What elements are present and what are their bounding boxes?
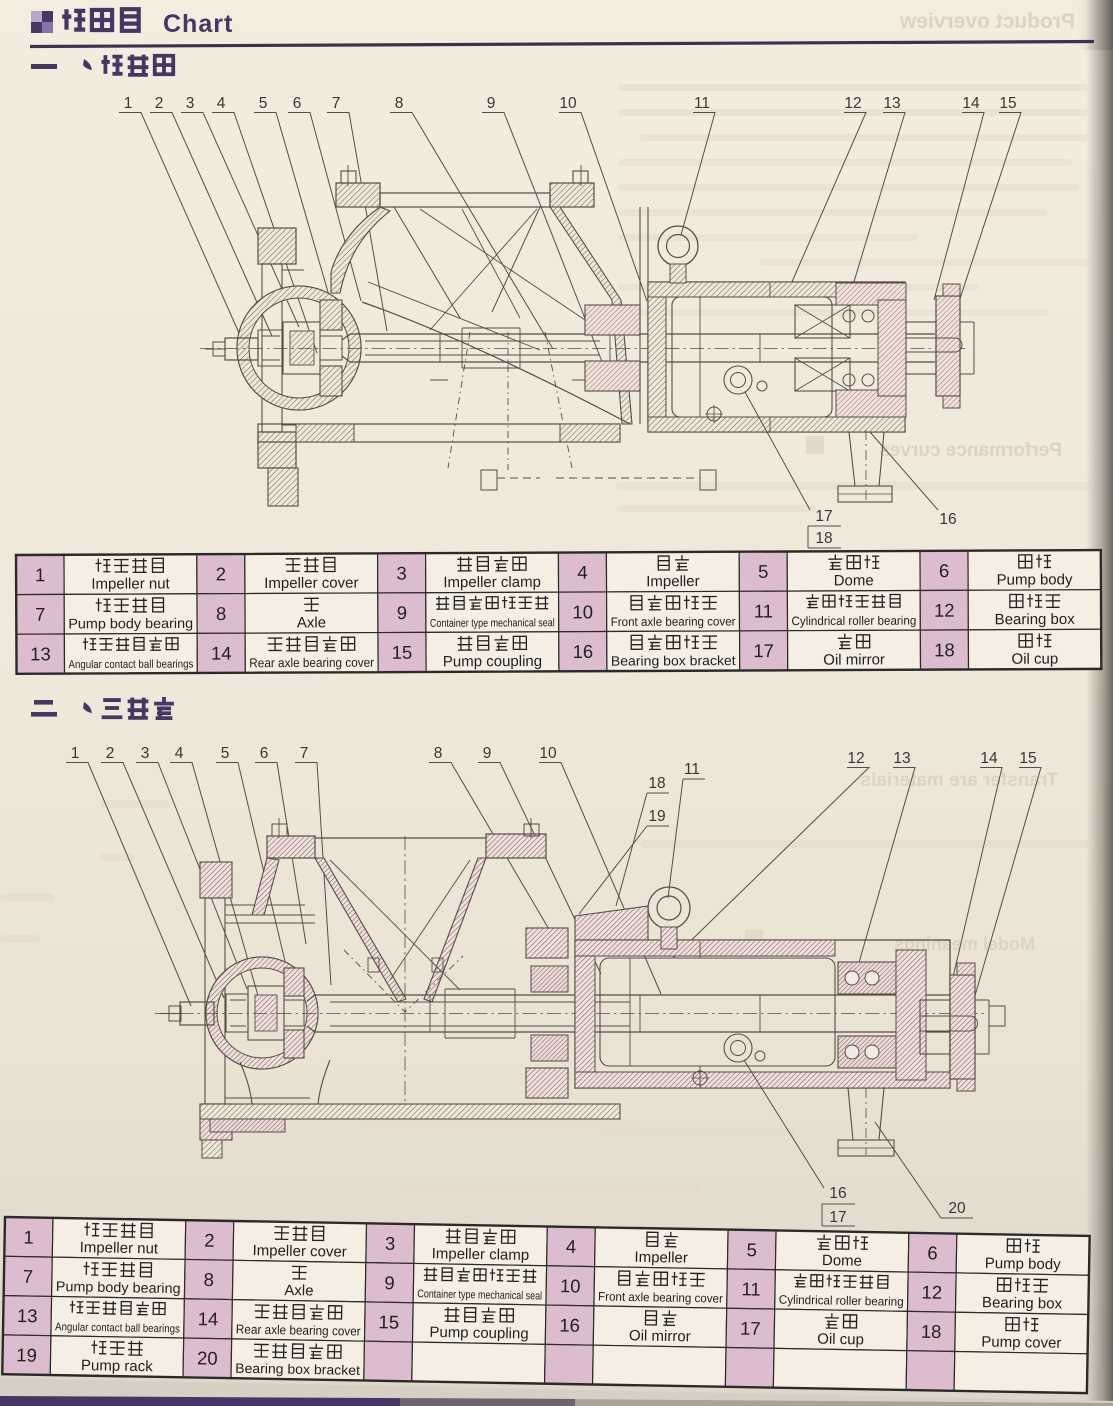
svg-text:Container type mechanical seal: Container type mechanical seal <box>417 1288 542 1302</box>
svg-text:13: 13 <box>30 643 51 664</box>
svg-text:Product overview: Product overview <box>899 10 1075 33</box>
svg-text:8: 8 <box>434 745 443 762</box>
svg-text:Transfer are materials: Transfer are materials <box>860 770 1058 791</box>
svg-text:7: 7 <box>332 95 341 112</box>
svg-text:15: 15 <box>392 642 413 663</box>
svg-text:14: 14 <box>962 95 980 112</box>
svg-text:18: 18 <box>648 775 665 792</box>
svg-text:5: 5 <box>746 1239 757 1260</box>
svg-text:13: 13 <box>17 1305 38 1326</box>
svg-text:1: 1 <box>23 1226 34 1247</box>
svg-text:Angular contact ball bearings: Angular contact ball bearings <box>68 658 193 671</box>
svg-text:Oil mirror: Oil mirror <box>823 651 885 668</box>
svg-text:1: 1 <box>71 745 80 762</box>
svg-text:14: 14 <box>211 643 232 664</box>
svg-text:Bearing box: Bearing box <box>982 1294 1063 1312</box>
svg-text:16: 16 <box>939 511 956 528</box>
svg-text:20: 20 <box>197 1347 218 1368</box>
svg-text:17: 17 <box>829 1209 846 1226</box>
svg-text:6: 6 <box>939 560 949 581</box>
svg-text:9: 9 <box>397 602 407 623</box>
svg-text:14: 14 <box>198 1308 219 1329</box>
svg-text:5: 5 <box>259 95 268 112</box>
svg-text:7: 7 <box>23 1266 34 1287</box>
svg-text:1: 1 <box>35 564 45 585</box>
svg-text:2: 2 <box>204 1230 215 1251</box>
svg-text:15: 15 <box>378 1311 399 1332</box>
svg-text:3: 3 <box>385 1233 396 1254</box>
svg-text:Dome: Dome <box>822 1252 862 1270</box>
svg-text:Rear axle bearing cover: Rear axle bearing cover <box>236 1321 362 1338</box>
svg-text:6: 6 <box>927 1242 938 1263</box>
svg-text:Impeller nut: Impeller nut <box>80 1239 159 1257</box>
svg-text:8: 8 <box>395 95 404 112</box>
svg-text:11: 11 <box>694 95 710 112</box>
svg-text:10: 10 <box>560 1275 581 1296</box>
svg-text:6: 6 <box>293 95 302 112</box>
svg-text:9: 9 <box>487 95 496 112</box>
svg-text:11: 11 <box>754 600 773 621</box>
svg-text:Front axle bearing cover: Front axle bearing cover <box>611 614 736 629</box>
svg-text:16: 16 <box>829 1185 846 1202</box>
svg-text:18: 18 <box>815 530 832 547</box>
svg-text:12: 12 <box>921 1281 942 1302</box>
svg-text:17: 17 <box>740 1318 761 1339</box>
svg-text:Pump body: Pump body <box>985 1255 1062 1273</box>
svg-text:4: 4 <box>566 1236 577 1257</box>
svg-text:Impeller cover: Impeller cover <box>252 1242 346 1261</box>
svg-text:15: 15 <box>999 95 1016 112</box>
svg-text:5: 5 <box>221 745 230 762</box>
svg-text:Axle: Axle <box>297 614 326 631</box>
svg-text:19: 19 <box>648 808 665 825</box>
svg-text:Pump cover: Pump cover <box>981 1333 1061 1351</box>
svg-text:9: 9 <box>384 1272 395 1293</box>
svg-text:Axle: Axle <box>284 1282 313 1300</box>
svg-text:Impeller clamp: Impeller clamp <box>432 1245 530 1264</box>
svg-text:Oil mirror: Oil mirror <box>629 1327 691 1345</box>
svg-text:3: 3 <box>396 563 406 584</box>
svg-text:4: 4 <box>217 95 226 112</box>
svg-text:4: 4 <box>175 745 184 762</box>
svg-text:Impeller cover: Impeller cover <box>264 575 358 592</box>
svg-text:Cylindrical roller bearing: Cylindrical roller bearing <box>791 614 916 629</box>
svg-text:Dome: Dome <box>834 572 874 589</box>
svg-text:12: 12 <box>844 95 861 112</box>
svg-text:16: 16 <box>573 641 594 662</box>
svg-text:Impeller: Impeller <box>646 573 699 590</box>
svg-text:2: 2 <box>155 95 164 112</box>
svg-text:Pump body bearing: Pump body bearing <box>68 615 193 632</box>
svg-text:Impeller clamp: Impeller clamp <box>443 574 541 591</box>
svg-text:12: 12 <box>847 750 864 767</box>
svg-text:Impeller: Impeller <box>634 1249 688 1267</box>
svg-text:3: 3 <box>186 95 195 112</box>
svg-text:Impeller nut: Impeller nut <box>91 575 170 592</box>
svg-text:15: 15 <box>1019 750 1036 767</box>
svg-text:Performance curves: Performance curves <box>879 440 1062 461</box>
svg-text:6: 6 <box>260 745 269 762</box>
svg-text:Front axle bearing cover: Front axle bearing cover <box>598 1289 723 1305</box>
svg-text:7: 7 <box>300 745 309 762</box>
svg-text:20: 20 <box>948 1200 966 1217</box>
svg-text:Container type mechanical seal: Container type mechanical seal <box>430 617 555 630</box>
svg-text:Angular contact ball bearings: Angular contact ball bearings <box>55 1321 180 1335</box>
svg-text:2: 2 <box>216 563 226 584</box>
svg-text:10: 10 <box>539 745 557 762</box>
svg-text:13: 13 <box>893 750 910 767</box>
svg-text:10: 10 <box>559 95 577 112</box>
svg-text:Bearing box: Bearing box <box>995 611 1076 628</box>
svg-text:Chart: Chart <box>163 10 233 38</box>
svg-text:8: 8 <box>203 1269 214 1290</box>
svg-text:11: 11 <box>741 1278 761 1299</box>
svg-text:2: 2 <box>106 745 115 762</box>
svg-text:18: 18 <box>921 1321 942 1342</box>
svg-text:Pump coupling: Pump coupling <box>429 1324 529 1343</box>
svg-text:1: 1 <box>124 95 133 112</box>
svg-text:Bearing box bracket: Bearing box bracket <box>235 1361 360 1378</box>
svg-text:Rear axle bearing cover: Rear axle bearing cover <box>249 655 375 671</box>
svg-text:Pump coupling: Pump coupling <box>443 653 542 670</box>
svg-text:16: 16 <box>559 1314 580 1335</box>
svg-text:3: 3 <box>141 745 150 762</box>
svg-text:Pump rack: Pump rack <box>81 1357 153 1375</box>
svg-text:10: 10 <box>572 601 593 622</box>
svg-text:Cylindrical roller bearing: Cylindrical roller bearing <box>779 1293 904 1309</box>
svg-text:Oil cup: Oil cup <box>1012 651 1059 668</box>
svg-text:14: 14 <box>980 750 998 767</box>
svg-text:8: 8 <box>216 603 226 624</box>
svg-text:11: 11 <box>684 761 700 778</box>
svg-text:17: 17 <box>753 640 774 661</box>
svg-text:5: 5 <box>758 561 768 582</box>
svg-text:12: 12 <box>934 600 955 621</box>
svg-text:Pump body bearing: Pump body bearing <box>56 1278 181 1296</box>
svg-text:19: 19 <box>16 1344 37 1365</box>
svg-text:Bearing box bracket: Bearing box bracket <box>611 653 736 669</box>
svg-text:9: 9 <box>483 745 492 762</box>
svg-text:13: 13 <box>883 95 900 112</box>
svg-text:Oil cup: Oil cup <box>817 1331 864 1349</box>
svg-text:7: 7 <box>35 604 45 625</box>
svg-text:4: 4 <box>577 562 587 583</box>
svg-text:18: 18 <box>934 639 955 660</box>
svg-text:17: 17 <box>815 508 832 525</box>
svg-text:Pump body: Pump body <box>997 571 1073 588</box>
